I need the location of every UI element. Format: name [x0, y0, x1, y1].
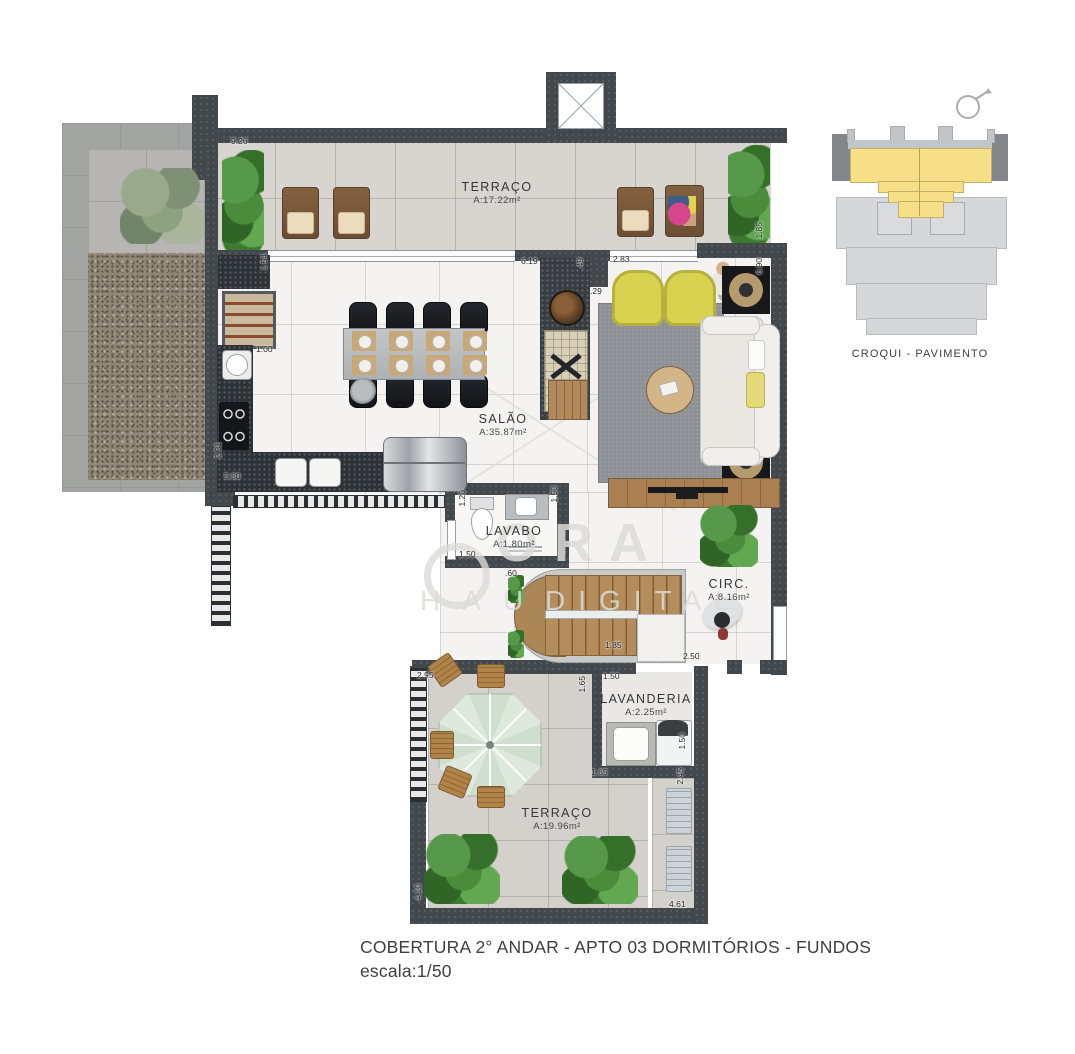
place-setting-6 — [389, 355, 413, 375]
dim-2-83: 2.83 — [613, 254, 630, 264]
dim-2-95: 2.95 — [417, 670, 434, 680]
person-walking-arm — [718, 628, 728, 640]
plan-title: COBERTURA 2° ANDAR - APTO 03 DORMITÓRIOS… — [360, 936, 871, 960]
room-area-terraco-top: A:17.22m² — [473, 195, 520, 206]
dim-1-50-lavabo-b: 1.50 — [459, 549, 476, 559]
dim-1-85-right: 1.85 — [754, 222, 764, 239]
wall-bottom-terrace-bottom — [410, 908, 708, 924]
place-setting-7 — [426, 355, 450, 375]
lounge-chair-1-pillow — [287, 212, 314, 234]
laundry-washtub — [613, 727, 649, 761]
dim-1-50-lavabo-r: 1.50 — [549, 486, 559, 503]
window-terrace-salon-left — [268, 250, 515, 262]
umbrella-pole — [486, 741, 494, 749]
firewood-basket — [549, 290, 585, 326]
sofa-arm-bottom — [702, 447, 760, 466]
lounge-chair-2-pillow — [338, 212, 365, 234]
place-setting-5 — [352, 355, 376, 375]
wall-circ-bottom-right — [760, 660, 787, 674]
wall-lavabo-left — [445, 495, 455, 522]
croqui-keyplan: CROQUI - PAVIMENTO — [820, 75, 1020, 375]
elevator-x-icon — [558, 83, 604, 129]
kitchen-double-sink-left — [275, 458, 307, 487]
kitchen-double-sink-right — [309, 458, 341, 487]
dim-4-61: 4.61 — [669, 899, 686, 909]
room-label-terraco-bottom: TERRAÇO — [522, 806, 593, 820]
dim-9-26: 9.26 — [231, 136, 248, 146]
wall-bottom-terrace-right — [694, 666, 708, 924]
pergola-beam-vertical — [211, 506, 231, 626]
dim-6-90: 6.90 — [754, 258, 764, 275]
ac-condenser-1 — [666, 788, 692, 834]
wall-circ-bottom-stub — [727, 660, 742, 674]
room-area-lavabo: A:1.80m² — [493, 539, 535, 550]
person-seated-dining — [350, 378, 378, 406]
dim-6-19: 6.19 — [521, 256, 538, 266]
place-setting-3 — [426, 331, 450, 351]
patio-chair-2 — [477, 664, 505, 688]
door-circ-right-glass — [773, 606, 787, 668]
elevator-cab — [558, 83, 604, 129]
croqui-body-3 — [856, 283, 987, 320]
title-block: COBERTURA 2° ANDAR - APTO 03 DORMITÓRIOS… — [360, 936, 871, 983]
dim-1-85-stair: 1.85 — [605, 640, 622, 650]
dim-0-60: .60 — [505, 568, 517, 578]
floorplan-canvas: ORA HAU DIGITAL — [0, 0, 1075, 1054]
tv-media-box — [676, 489, 698, 499]
sofa-pillow-yellow — [746, 372, 765, 408]
dim-1-65-laundry-l: 1.65 — [577, 676, 587, 693]
patio-chair-5 — [477, 786, 505, 808]
place-setting-8 — [463, 355, 487, 375]
dim-1-00: 1.00 — [256, 344, 273, 354]
sofa-arm-top — [702, 316, 760, 335]
place-setting-4 — [463, 331, 487, 351]
plan-scale: escala:1/50 — [360, 960, 871, 984]
ac-niche-divider — [648, 778, 652, 908]
wall-terrace-top — [215, 128, 787, 143]
place-setting-1 — [352, 331, 376, 351]
pergola-beam-horizontal — [233, 495, 449, 508]
pebble-garden — [88, 253, 205, 480]
dim-1-50-laundry-t: 1.50 — [603, 671, 620, 681]
dim-2-45: 2.45 — [675, 768, 685, 785]
dim-1-20: 1.20 — [457, 490, 467, 507]
dim-1-65-laundry-b: 1.65 — [591, 767, 608, 777]
croqui-highlight-main — [850, 148, 992, 183]
ac-condenser-2 — [666, 846, 692, 892]
wood-crate — [548, 380, 588, 420]
cooktop — [219, 402, 249, 450]
dim-0-29: .29 — [590, 286, 602, 296]
room-area-lavanderia: A:2.25m² — [625, 707, 667, 718]
wall-kitchen-bottom-corner — [205, 492, 235, 506]
lounge-chair-3-pillow — [622, 210, 649, 231]
stair-plant-bottom — [508, 630, 524, 658]
bottom-terrace-left-hatch — [410, 668, 427, 802]
dim-0-49: .49 — [575, 258, 585, 270]
circ-plant — [700, 505, 758, 567]
watermark-word-left: HAU — [420, 585, 545, 617]
stair-lower-landing — [637, 614, 685, 662]
sofa-pillow-white — [748, 340, 765, 370]
room-label-circ: CIRC. — [708, 577, 749, 591]
barbecue-grill — [222, 291, 276, 349]
room-label-lavabo: LAVABO — [486, 524, 543, 538]
dim-2-31: 2.31 — [213, 442, 223, 459]
side-table-top-tray — [729, 273, 763, 307]
dim-5-80: 5.80 — [224, 471, 241, 481]
place-setting-2 — [389, 331, 413, 351]
croqui-caption: CROQUI - PAVIMENTO — [850, 348, 990, 360]
croqui-body-2 — [846, 247, 997, 285]
wall-laundry-bottom — [592, 766, 704, 778]
dim-1-54: 1.54 — [259, 254, 269, 271]
courtyard-plant — [120, 168, 204, 244]
person-sunbathing — [668, 196, 696, 226]
room-label-salao: SALÃO — [479, 412, 528, 426]
armchair-yellow-1 — [612, 270, 664, 326]
stainless-island-cart — [383, 437, 467, 492]
stair-flight-lower — [545, 616, 637, 656]
room-label-lavanderia: LAVANDERIA — [600, 692, 691, 706]
bottom-terrace-plant-right — [562, 836, 638, 904]
croqui-body-4 — [866, 318, 977, 335]
stainless-island-seam — [383, 462, 465, 464]
croqui-highlight-step3 — [898, 201, 944, 218]
dim-2-50: 2.50 — [683, 651, 700, 661]
dim-1-50-laundry-r: 1.50 — [677, 733, 687, 750]
croqui-unit-divider — [919, 148, 920, 216]
room-label-terraco-top: TERRAÇO — [462, 180, 533, 194]
north-arrow-icon — [952, 87, 994, 121]
room-area-terraco-bottom: A:19.96m² — [533, 821, 580, 832]
kitchen-round-sink-bowl — [226, 354, 248, 376]
room-area-circ: A:8.16m² — [708, 592, 750, 603]
planter-top-terrace-left — [222, 150, 264, 250]
wall-stub-fireplace — [588, 261, 608, 287]
wall-laundry-left — [592, 666, 602, 778]
bottom-terrace-plant-left — [424, 834, 500, 904]
room-area-salao: A:35.87m² — [479, 427, 526, 438]
patio-chair-3 — [430, 731, 454, 759]
dim-4-10: 4.10 — [413, 884, 423, 901]
